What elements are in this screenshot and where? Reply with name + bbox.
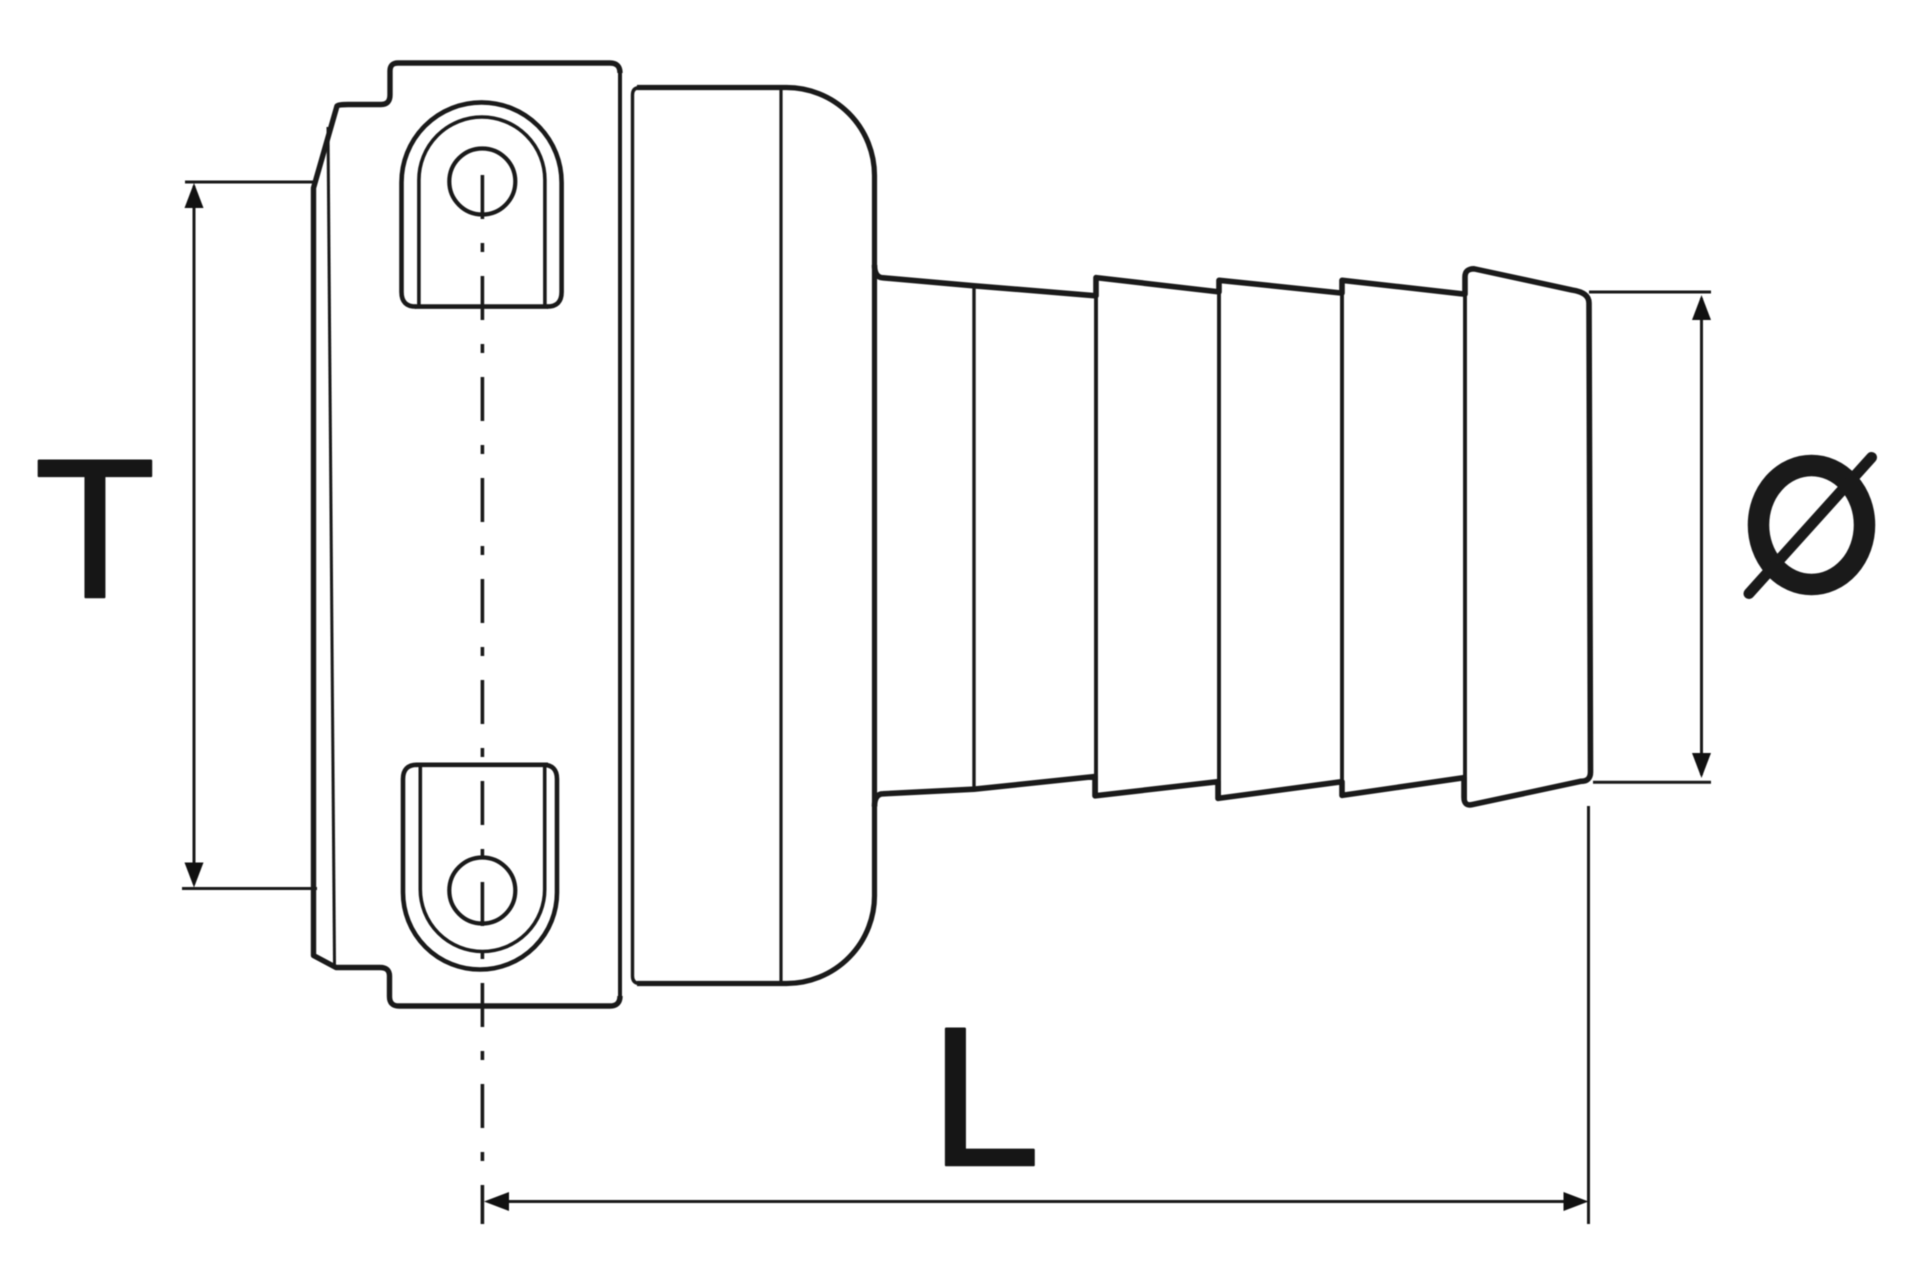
svg-text:T: T [35,418,156,639]
svg-text:L: L [930,986,1040,1207]
